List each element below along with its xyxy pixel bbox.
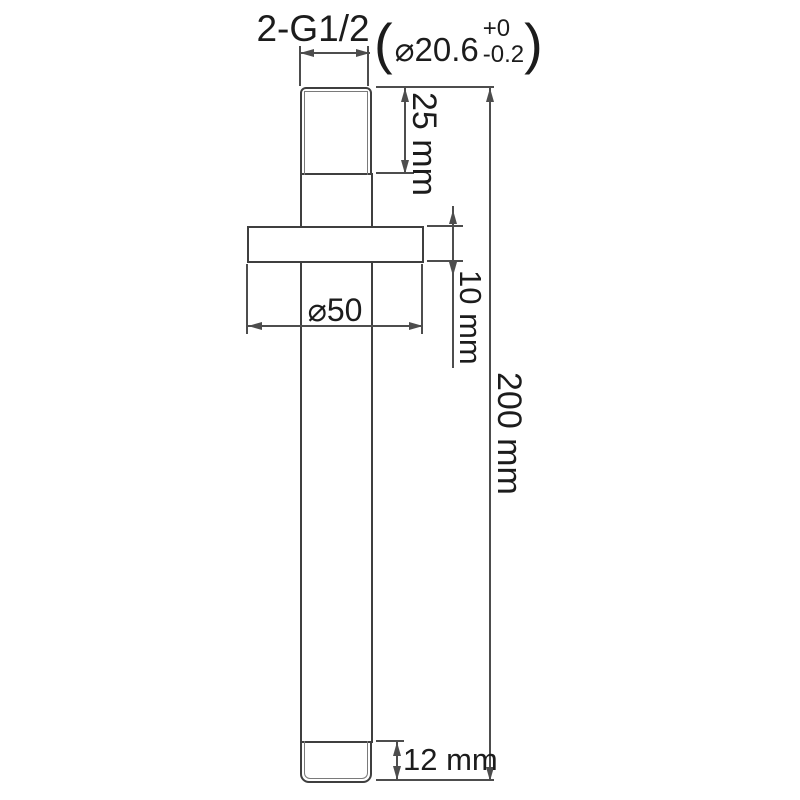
dim-200-arrow-top <box>486 88 494 102</box>
thread-spec-label: 2-G1/2 <box>248 10 378 47</box>
dim-10-extension-line-top <box>427 225 463 227</box>
dim-50-arrow-right <box>409 322 423 330</box>
g12-arrow-right <box>356 49 370 57</box>
tolerance-stack: +0 -0.2 <box>483 16 524 68</box>
dim-12-arrow-bottom <box>393 766 401 780</box>
tolerance-close-paren: ) <box>524 14 543 74</box>
tolerance-note: ( ⌀20.6 +0 -0.2 ) <box>374 14 543 74</box>
dim-12-arrow-top <box>393 742 401 756</box>
g12-arrow-left <box>300 49 314 57</box>
dim-25-label: 25 mm <box>407 92 441 196</box>
technical-drawing-canvas: 2-G1/2 ( ⌀20.6 +0 -0.2 ) 25 mm 10 mm ⌀50… <box>0 0 800 800</box>
dim-10-arrow-top <box>449 210 457 224</box>
dim-12-label: 12 mm <box>403 744 498 775</box>
dim-50-arrow-left <box>248 322 262 330</box>
flange-outline <box>247 226 424 263</box>
bore-diameter-label: ⌀20.6 <box>395 33 479 66</box>
dim-10-label: 10 mm <box>455 270 486 365</box>
dim-200-label: 200 mm <box>492 372 526 495</box>
dim-50-label: ⌀50 <box>270 294 400 326</box>
tolerance-open-paren: ( <box>374 14 393 74</box>
top-thread-inner-line <box>304 91 368 175</box>
top-extension-line-shared <box>376 86 494 88</box>
bottom-thread-inner-line <box>304 741 368 779</box>
tolerance-lower-label: -0.2 <box>483 42 524 68</box>
dim-10-extension-line-bottom <box>427 260 463 262</box>
tolerance-upper-label: +0 <box>483 16 524 42</box>
